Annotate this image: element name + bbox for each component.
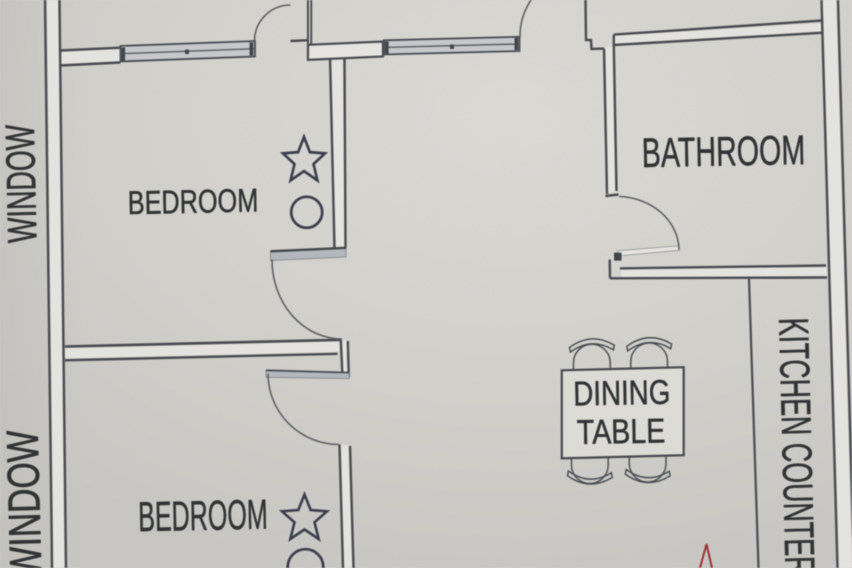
svg-text:KITCHEN COUNTER: KITCHEN COUNTER: [770, 317, 824, 568]
svg-text:BEDROOM: BEDROOM: [138, 491, 268, 541]
svg-text:TABLE: TABLE: [576, 412, 665, 452]
svg-text:BATHROOM: BATHROOM: [641, 126, 805, 176]
svg-text:WINDOW: WINDOW: [0, 124, 45, 243]
svg-text:DINING: DINING: [573, 374, 671, 414]
svg-text:WINDOW: WINDOW: [0, 429, 51, 568]
svg-text:BEDROOM: BEDROOM: [127, 181, 258, 221]
